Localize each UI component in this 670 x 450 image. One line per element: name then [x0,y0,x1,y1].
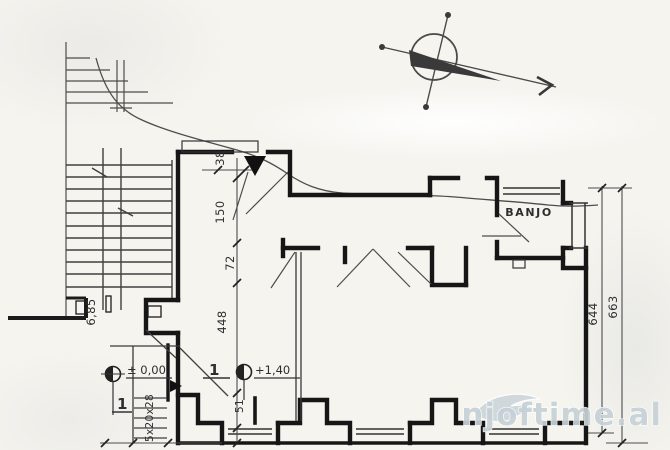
north-compass-icon [379,12,556,110]
interior-partition-lines [110,252,301,443]
dim-51-label: 51 [234,399,246,413]
level-140-label: +1,40 [255,363,290,377]
retaining-wall-hatch [66,42,173,320]
exterior-staircase [66,148,172,310]
floor-plan-drawing: 38 150 72 448 51 644 663 6,85 5x20x28 ± … [0,0,670,450]
building-interior-walls [283,240,466,285]
watermark: njoftime.al [461,394,662,433]
dim-150-label: 150 [213,200,227,223]
section-mark-right: 1 [209,361,219,379]
floor-plan-scan: 38 150 72 448 51 644 663 6,85 5x20x28 ± … [0,0,670,450]
stair-note-label: 5x20x28 [144,394,156,442]
watermark-text: njoftime.al [461,397,662,433]
window-lines [182,141,588,434]
room-label-bathroom: BANJO [505,206,553,219]
dim-72-label: 72 [223,255,237,270]
section-mark-left: 1 [117,395,127,413]
dim-644-label: 644 [586,302,600,325]
compass-arrowhead-icon [537,77,552,95]
door-swing-lines [233,172,529,288]
dim-685-label: 6,85 [84,298,98,325]
level-labels: ± 0,00 +1,40 1 1 [117,361,290,413]
dim-448-label: 448 [215,310,229,333]
level-zero-label: ± 0,00 [127,363,166,377]
dim-38-label: 38 [213,150,227,165]
dim-663-label: 663 [606,295,620,318]
